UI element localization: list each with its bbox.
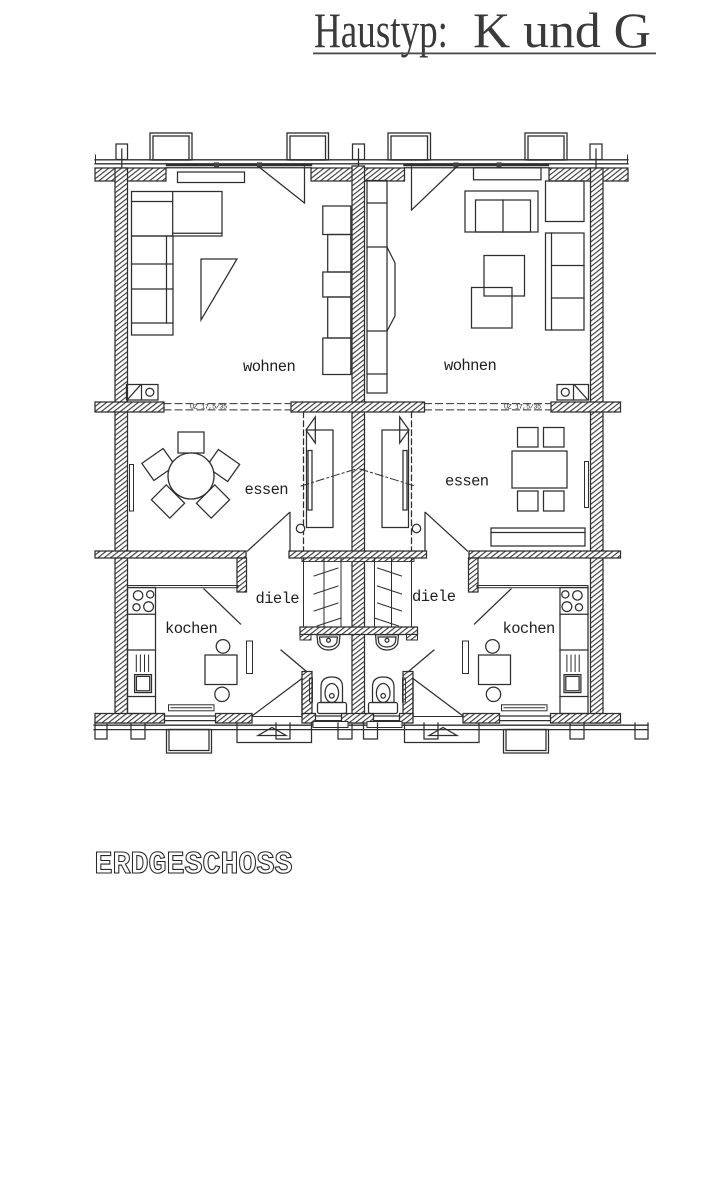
- svg-text:diele: diele: [412, 588, 456, 606]
- svg-text:K und G: K und G: [473, 2, 651, 58]
- svg-text:Haustyp:: Haustyp:: [314, 2, 448, 58]
- svg-text:UZ 17,5/35: UZ 17,5/35: [190, 403, 227, 411]
- svg-text:kochen: kochen: [503, 620, 555, 638]
- svg-text:wohnen: wohnen: [243, 358, 295, 376]
- svg-text:wohnen: wohnen: [444, 357, 496, 375]
- svg-text:essen: essen: [445, 473, 489, 491]
- svg-text:diele: diele: [256, 590, 300, 608]
- svg-text:kochen: kochen: [165, 620, 217, 638]
- svg-text:ERDGESCHOSS: ERDGESCHOSS: [95, 847, 293, 883]
- svg-text:UZ 17,5/35: UZ 17,5/35: [504, 403, 541, 411]
- svg-text:essen: essen: [245, 481, 289, 499]
